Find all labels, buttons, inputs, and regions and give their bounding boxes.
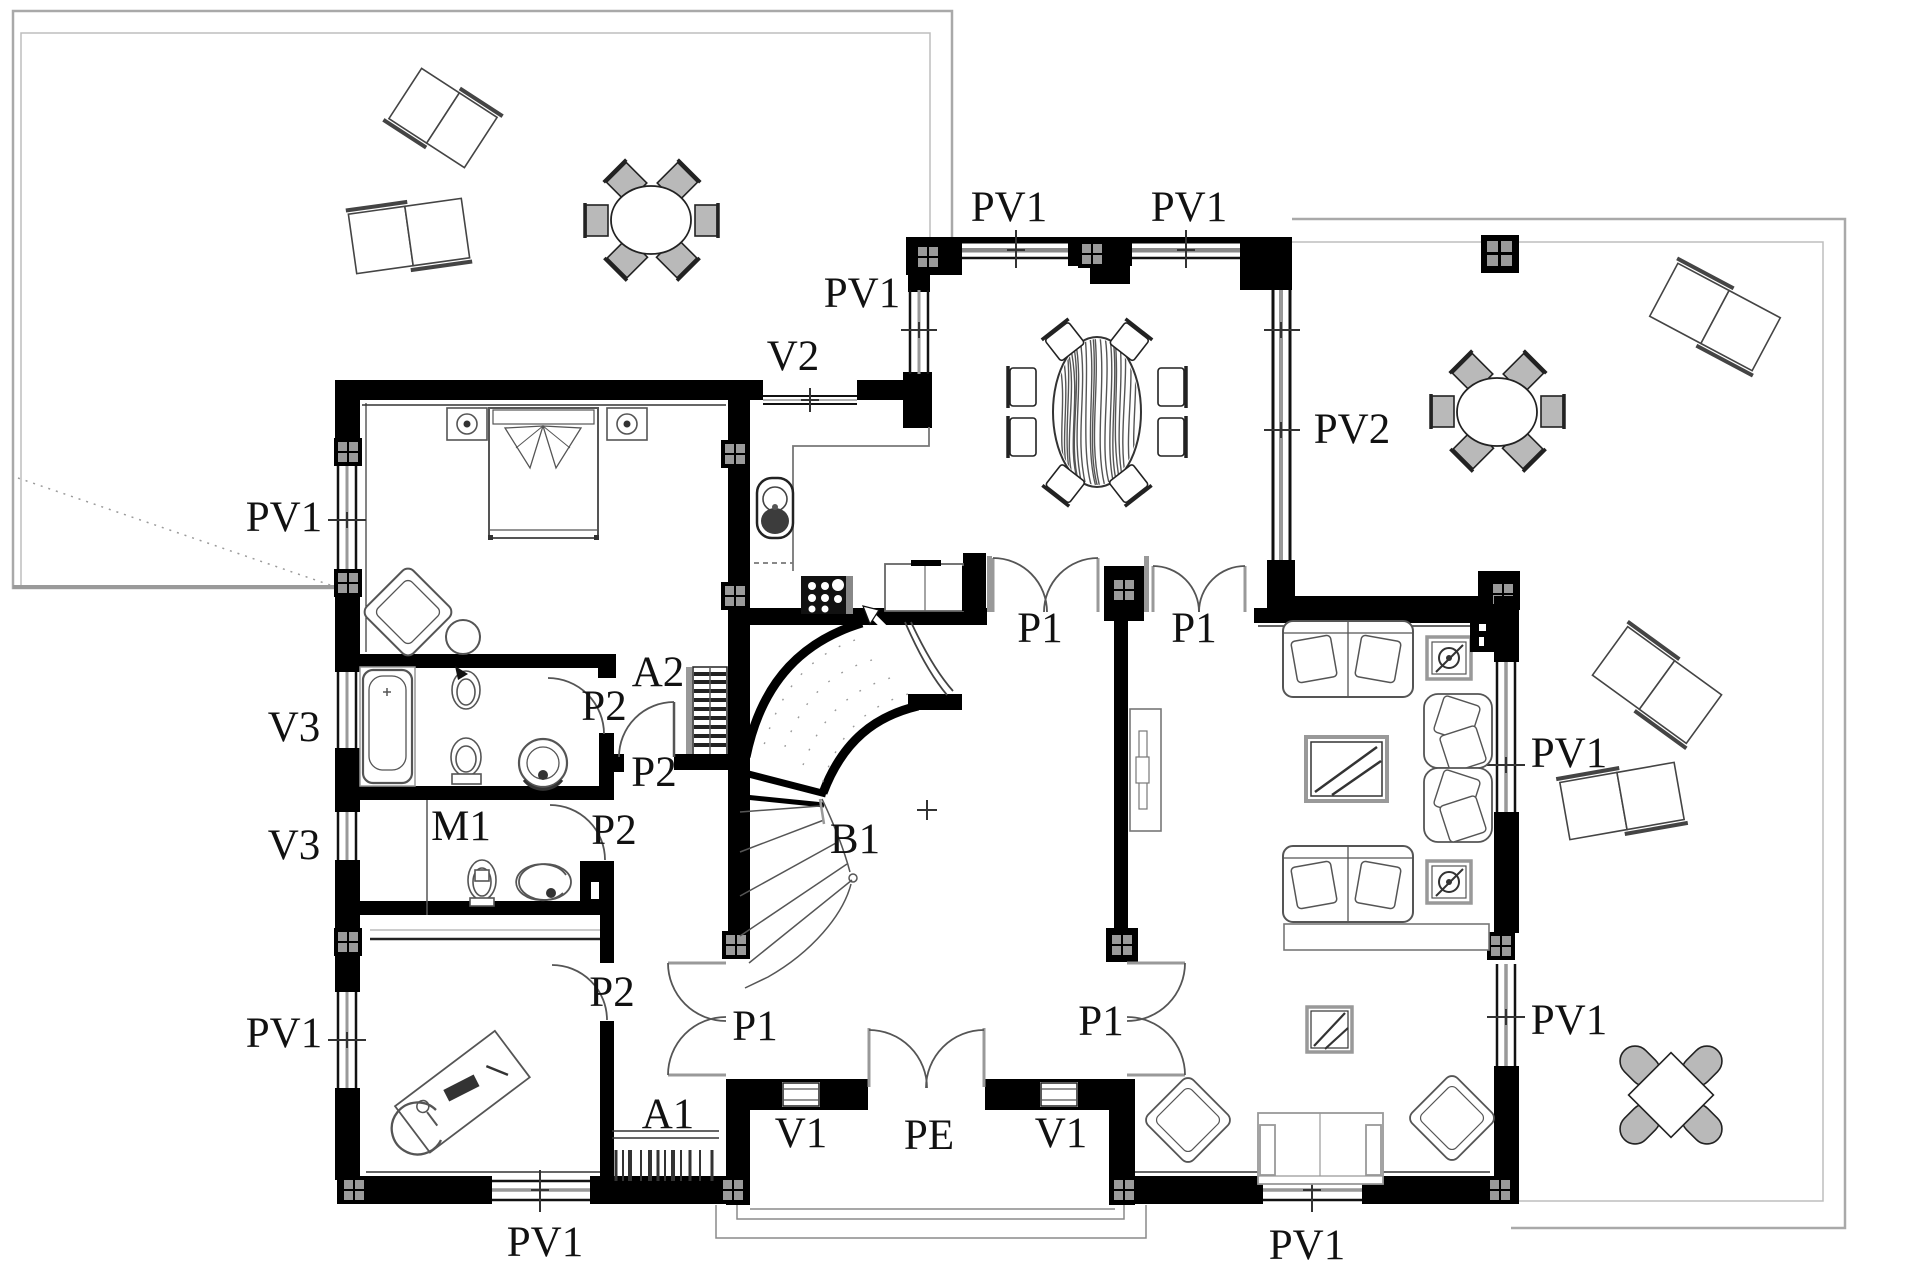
svg-text:PV1: PV1: [1531, 997, 1607, 1044]
svg-text:PV1: PV1: [1531, 730, 1607, 777]
svg-text:P1: P1: [1171, 605, 1216, 652]
svg-text:PE: PE: [904, 1112, 954, 1159]
svg-text:P2: P2: [631, 749, 676, 796]
svg-text:PV1: PV1: [246, 494, 322, 541]
svg-text:M1: M1: [431, 803, 491, 850]
svg-text:V1: V1: [1035, 1110, 1088, 1157]
svg-text:V3: V3: [268, 704, 321, 751]
svg-text:A1: A1: [642, 1091, 695, 1138]
svg-text:PV1: PV1: [1269, 1222, 1345, 1269]
svg-text:P2: P2: [591, 807, 636, 854]
svg-text:P1: P1: [1078, 998, 1123, 1045]
svg-text:V1: V1: [775, 1110, 828, 1157]
svg-text:PV1: PV1: [824, 270, 900, 317]
svg-text:PV1: PV1: [507, 1219, 583, 1266]
svg-text:PV1: PV1: [971, 184, 1047, 231]
svg-text:P1: P1: [732, 1003, 777, 1050]
svg-text:P2: P2: [589, 969, 634, 1016]
svg-text:PV1: PV1: [246, 1010, 322, 1057]
svg-text:B1: B1: [830, 816, 880, 863]
svg-text:PV1: PV1: [1151, 184, 1227, 231]
svg-text:PV2: PV2: [1314, 406, 1390, 453]
svg-text:A2: A2: [632, 649, 685, 696]
svg-text:P2: P2: [581, 683, 626, 730]
svg-text:P1: P1: [1017, 605, 1062, 652]
svg-text:V2: V2: [767, 333, 820, 380]
svg-text:V3: V3: [268, 822, 321, 869]
